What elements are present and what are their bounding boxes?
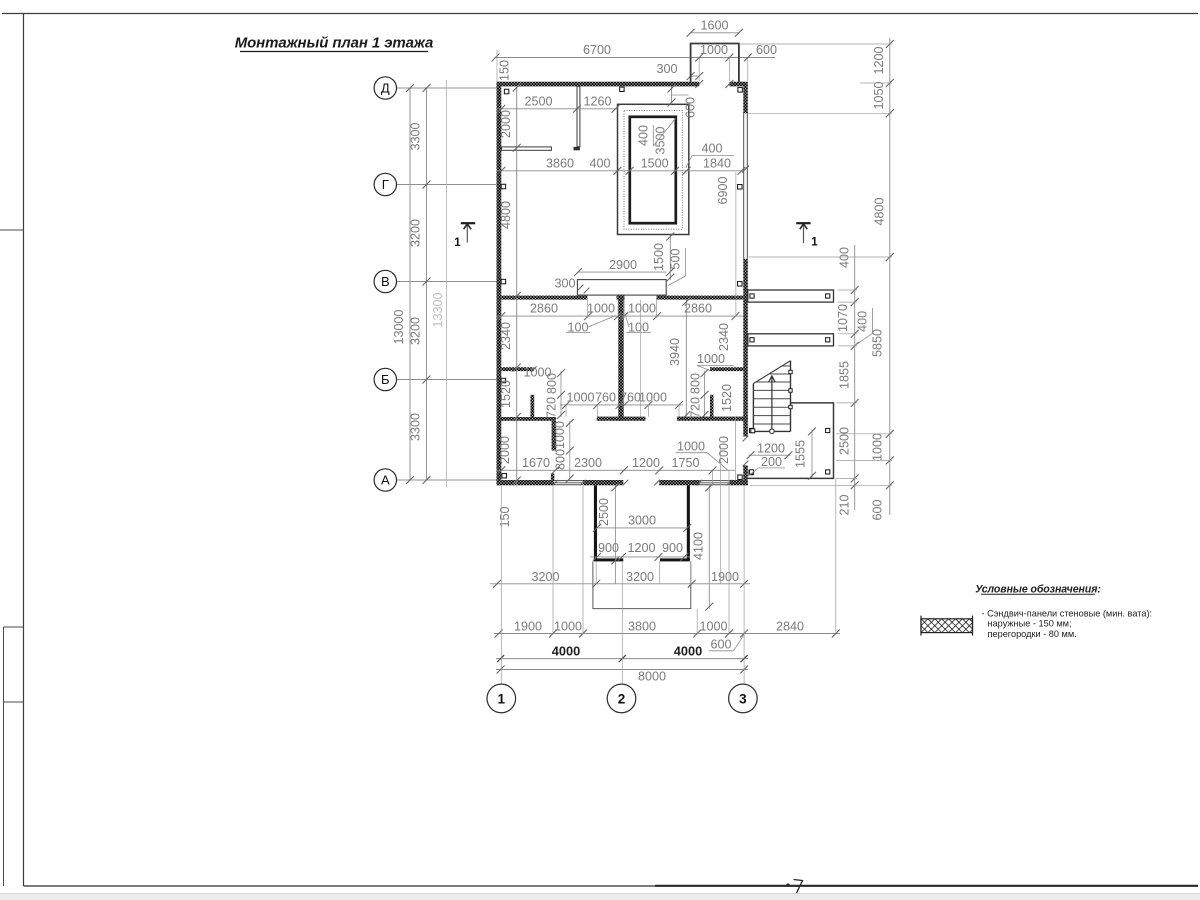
svg-text:А: А bbox=[381, 473, 390, 488]
svg-text:300: 300 bbox=[554, 276, 575, 290]
svg-text:6900: 6900 bbox=[716, 176, 730, 204]
svg-text:2300: 2300 bbox=[574, 456, 602, 470]
svg-text:150: 150 bbox=[498, 60, 512, 81]
svg-text:1000: 1000 bbox=[566, 391, 594, 405]
svg-text:1000: 1000 bbox=[699, 620, 727, 634]
svg-text:800: 800 bbox=[689, 373, 703, 394]
svg-text:1050: 1050 bbox=[872, 81, 886, 109]
svg-text:3: 3 bbox=[739, 691, 747, 706]
svg-text:3940: 3940 bbox=[668, 338, 682, 366]
svg-text:1000: 1000 bbox=[700, 43, 728, 57]
svg-text:400: 400 bbox=[589, 157, 610, 171]
svg-text:1750: 1750 bbox=[671, 456, 699, 470]
svg-text:400: 400 bbox=[838, 247, 852, 268]
svg-text:1000: 1000 bbox=[553, 421, 567, 449]
svg-text:1200: 1200 bbox=[627, 541, 655, 555]
svg-text:150: 150 bbox=[498, 506, 512, 527]
svg-text:4000: 4000 bbox=[674, 643, 702, 658]
svg-text:1500: 1500 bbox=[641, 157, 669, 171]
svg-text:400: 400 bbox=[856, 311, 870, 332]
svg-text:3200: 3200 bbox=[409, 219, 423, 247]
svg-text:900: 900 bbox=[598, 541, 619, 555]
svg-text:1260: 1260 bbox=[583, 95, 611, 109]
svg-text:8000: 8000 bbox=[638, 669, 666, 683]
svg-text:600: 600 bbox=[710, 638, 731, 652]
svg-text:1555: 1555 bbox=[794, 440, 808, 468]
svg-text:1000: 1000 bbox=[587, 302, 615, 316]
svg-text:2000: 2000 bbox=[499, 110, 513, 138]
svg-text:2000: 2000 bbox=[498, 436, 512, 464]
svg-text:200: 200 bbox=[761, 455, 782, 469]
svg-text:3200: 3200 bbox=[409, 317, 423, 345]
svg-text:1670: 1670 bbox=[522, 456, 550, 470]
svg-text:2500: 2500 bbox=[838, 427, 852, 455]
svg-text:13300: 13300 bbox=[431, 292, 445, 327]
svg-text:6700: 6700 bbox=[583, 43, 611, 57]
svg-text:3000: 3000 bbox=[628, 514, 656, 528]
svg-text:2: 2 bbox=[618, 691, 626, 706]
svg-text:1070: 1070 bbox=[836, 304, 850, 332]
svg-text:- Сэндвич-панели стеновые (мин: - Сэндвич-панели стеновые (мин. вата): bbox=[982, 608, 1153, 618]
svg-text:4100: 4100 bbox=[692, 532, 706, 560]
svg-text:1000: 1000 bbox=[639, 391, 667, 405]
svg-text:900: 900 bbox=[662, 541, 683, 555]
svg-text:1: 1 bbox=[811, 237, 818, 249]
svg-text:1900: 1900 bbox=[514, 620, 542, 634]
svg-text:1000: 1000 bbox=[554, 620, 582, 634]
svg-text:1200: 1200 bbox=[632, 456, 660, 470]
svg-text:4800: 4800 bbox=[499, 201, 513, 229]
svg-text:3500: 3500 bbox=[654, 126, 668, 154]
svg-text:2500: 2500 bbox=[597, 498, 611, 526]
svg-text:1900: 1900 bbox=[711, 570, 739, 584]
svg-text:2860: 2860 bbox=[530, 302, 558, 316]
svg-text:1000: 1000 bbox=[697, 352, 725, 366]
svg-text:3200: 3200 bbox=[531, 570, 559, 584]
svg-text:Г: Г bbox=[382, 177, 389, 192]
svg-text:600: 600 bbox=[870, 499, 884, 520]
svg-text:600: 600 bbox=[684, 97, 698, 118]
svg-text:3300: 3300 bbox=[409, 122, 423, 150]
svg-text:1200: 1200 bbox=[757, 441, 785, 455]
svg-text:Б: Б bbox=[381, 372, 390, 387]
svg-text:5850: 5850 bbox=[870, 329, 884, 357]
svg-text:800: 800 bbox=[545, 373, 559, 394]
svg-text:наружные - 150 мм;: наружные - 150 мм; bbox=[988, 619, 1072, 629]
svg-text:2500: 2500 bbox=[524, 95, 552, 109]
svg-text:3300: 3300 bbox=[409, 413, 423, 441]
svg-text:В: В bbox=[381, 274, 390, 289]
svg-text:210: 210 bbox=[838, 494, 852, 515]
svg-text:4800: 4800 bbox=[872, 197, 886, 225]
svg-text:720: 720 bbox=[545, 397, 559, 418]
svg-text:800: 800 bbox=[554, 449, 568, 470]
svg-text:2000: 2000 bbox=[717, 436, 731, 464]
svg-text:Д: Д bbox=[381, 81, 390, 96]
svg-text:перегородки - 80 мм.: перегородки - 80 мм. bbox=[988, 629, 1077, 639]
svg-text:1: 1 bbox=[498, 691, 506, 706]
svg-text:3200: 3200 bbox=[626, 570, 654, 584]
svg-text:1600: 1600 bbox=[700, 19, 728, 33]
svg-text:300: 300 bbox=[656, 62, 677, 76]
svg-text:4000: 4000 bbox=[552, 643, 580, 658]
svg-text:3860: 3860 bbox=[546, 157, 574, 171]
svg-text:500: 500 bbox=[669, 248, 683, 269]
svg-text:400: 400 bbox=[637, 125, 651, 146]
svg-text:2860: 2860 bbox=[684, 302, 712, 316]
svg-text:2340: 2340 bbox=[499, 322, 513, 350]
svg-text:13000: 13000 bbox=[392, 309, 406, 344]
svg-text:2340: 2340 bbox=[717, 323, 731, 351]
svg-text:Условные обозначения:: Условные обозначения: bbox=[975, 584, 1101, 596]
svg-text:400: 400 bbox=[701, 141, 722, 155]
svg-text:1: 1 bbox=[454, 237, 461, 249]
svg-text:720: 720 bbox=[689, 397, 703, 418]
svg-text:1855: 1855 bbox=[838, 361, 852, 389]
svg-text:Монтажный план 1 этажа: Монтажный план 1 этажа bbox=[235, 35, 434, 52]
svg-text:1000: 1000 bbox=[677, 439, 705, 453]
svg-text:1520: 1520 bbox=[720, 384, 734, 412]
svg-text:1840: 1840 bbox=[703, 157, 731, 171]
svg-text:1000: 1000 bbox=[870, 433, 884, 461]
svg-text:600: 600 bbox=[756, 43, 777, 57]
svg-text:2900: 2900 bbox=[609, 258, 637, 272]
svg-text:1200: 1200 bbox=[872, 46, 886, 74]
svg-text:3800: 3800 bbox=[628, 620, 656, 634]
svg-text:1000: 1000 bbox=[628, 302, 656, 316]
svg-text:760: 760 bbox=[595, 391, 616, 405]
svg-text:2840: 2840 bbox=[776, 620, 804, 634]
svg-text:1520: 1520 bbox=[499, 380, 513, 408]
svg-text:760: 760 bbox=[620, 391, 641, 405]
svg-text:1500: 1500 bbox=[652, 243, 666, 271]
